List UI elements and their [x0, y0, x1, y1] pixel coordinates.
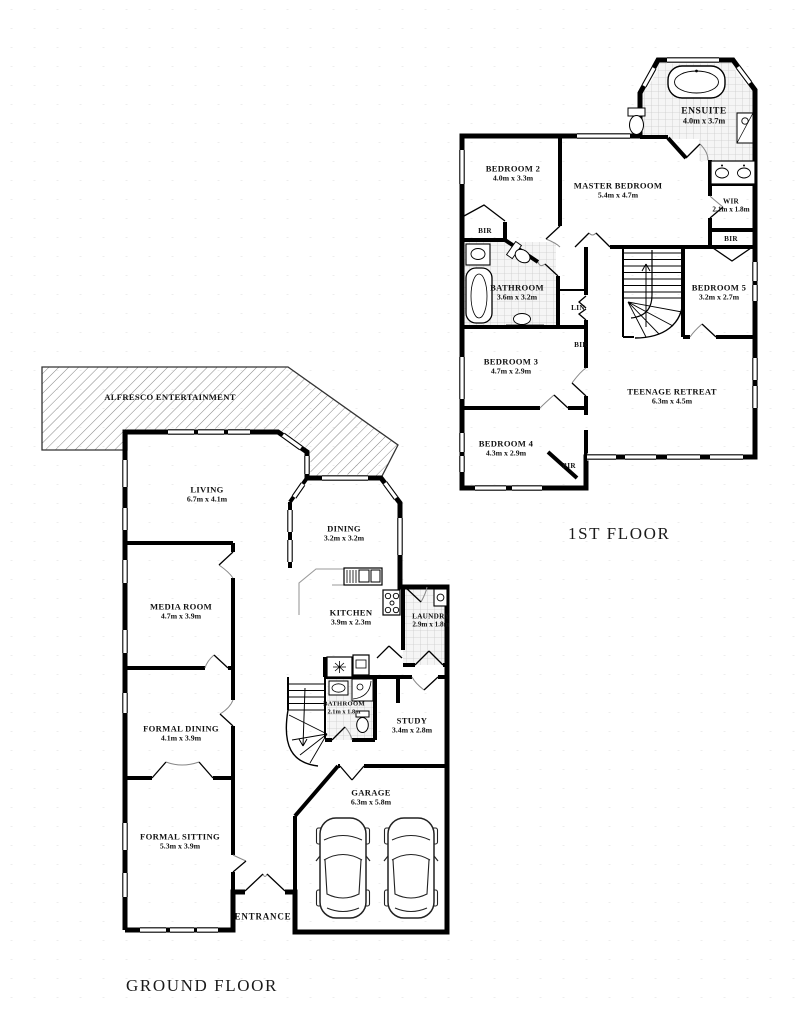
room-label-garage: GARAGE6.3m x 5.8m — [351, 787, 391, 806]
room-label-media-room: MEDIA ROOM4.7m x 3.9m — [150, 601, 212, 620]
room-label-bedroom3: BEDROOM 34.7m x 2.9m — [484, 356, 539, 375]
room-label-bathroom-ground: BATHROOM2.1m x 1.8m — [323, 700, 365, 715]
room-label-teenage-retreat: TEENAGE RETREAT6.3m x 4.5m — [627, 386, 717, 405]
stairs-icon — [623, 250, 683, 338]
ground-floor-plan — [42, 367, 447, 934]
room-label-wir: WIR2.1m x 1.8m — [712, 198, 749, 215]
room-label-bedroom4: BEDROOM 44.3m x 2.9m — [479, 438, 534, 457]
room-label-bedroom5: BEDROOM 53.2m x 2.7m — [692, 282, 747, 301]
fridge-icon — [327, 657, 352, 677]
room-label-alfresco: ALFRESCO ENTERTAINMENT — [104, 392, 235, 402]
shower-icon — [352, 679, 373, 701]
room-label-laundry: LAUNDRY2.9m x 1.8m — [412, 613, 450, 630]
room-label-formal-sitting: FORMAL SITTING5.3m x 3.9m — [140, 831, 220, 850]
room-label-living: LIVING6.7m x 4.1m — [187, 484, 227, 503]
room-label-dining: DINING3.2m x 3.2m — [324, 523, 364, 542]
alfresco-hatch — [42, 367, 398, 478]
sink-icon — [371, 570, 380, 582]
closet-label-bir-bedroom3: BIR — [574, 341, 588, 349]
shower-icon — [737, 113, 753, 143]
sink-icon — [329, 681, 348, 695]
sink-icon — [466, 244, 490, 265]
room-label-entrance: ENTRANCE — [235, 912, 292, 923]
floorplan-canvas: ALFRESCO ENTERTAINMENT LIVING6.7m x 4.1m… — [0, 0, 800, 1012]
bath-icon — [466, 268, 492, 323]
oven-icon — [353, 655, 369, 675]
vanity-icon — [711, 161, 755, 184]
room-label-formal-dining: FORMAL DINING4.1m x 3.9m — [143, 723, 219, 742]
first-floor-title: 1ST FLOOR — [568, 524, 670, 544]
bath-icon — [668, 66, 725, 98]
room-label-kitchen: KITCHEN3.9m x 2.3m — [330, 607, 373, 626]
closet-label-bir-bedroom4: BIR — [562, 462, 576, 470]
closet-label-lin: LIN — [571, 304, 585, 312]
closet-label-bir-wir-side: BIR — [724, 235, 738, 243]
stairs-icon — [286, 684, 327, 766]
sink-icon — [359, 570, 369, 582]
cooktop-icon — [383, 590, 400, 615]
toilet-icon — [628, 108, 645, 135]
floorplan-drawing — [0, 0, 800, 1012]
room-label-bathroom-first: BATHROOM3.6m x 3.2m — [490, 282, 544, 301]
closet-label-bir-bedroom2: BIR — [478, 227, 492, 235]
thin-walls-ground — [288, 677, 325, 738]
room-label-ensuite: ENSUITE4.0m x 3.7m — [681, 106, 727, 127]
room-label-bedroom2: BEDROOM 24.0m x 3.3m — [486, 163, 541, 182]
laundry-tub-icon — [434, 589, 447, 606]
ground-floor-title: GROUND FLOOR — [126, 976, 278, 996]
room-label-study: STUDY3.4m x 2.8m — [392, 715, 432, 734]
room-label-master-bedroom: MASTER BEDROOM5.4m x 4.7m — [574, 180, 662, 199]
